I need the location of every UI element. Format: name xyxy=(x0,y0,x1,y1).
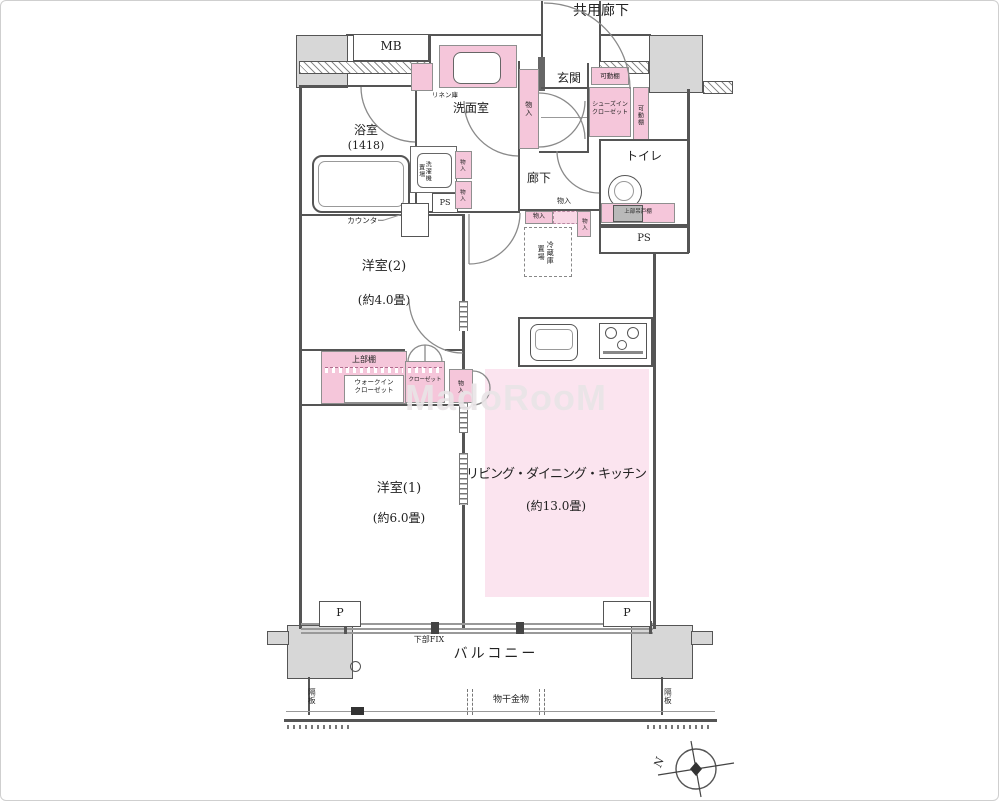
movable-shelf-label: 可動棚 xyxy=(591,72,629,80)
washer-label: 洗濯機 置場 xyxy=(417,151,430,191)
toilet-door-arc xyxy=(557,151,599,193)
lower-fix-label: 下部FIX xyxy=(399,635,459,645)
closet-butterfly-arc xyxy=(425,345,442,362)
partition-label-right: 隔板 xyxy=(663,683,672,709)
bedroom1-label: 洋室(1) xyxy=(341,481,457,497)
bath-label: 浴室 xyxy=(321,123,411,138)
window-frame-mark xyxy=(516,622,524,634)
boundary-dots xyxy=(287,725,353,729)
wall-left-outer xyxy=(299,85,302,629)
toilet-upper-cupboard-label: 上部吊戸棚 xyxy=(599,209,677,216)
balcony-label: バルコニー xyxy=(441,646,551,664)
pillar-indent-label: P xyxy=(603,606,651,620)
watermark: MadoRooM xyxy=(405,377,607,419)
kitchen-sink xyxy=(530,324,578,361)
hall-storage-vertical-label: 物入 xyxy=(580,213,587,235)
stove-burner xyxy=(627,327,639,339)
genkan-closet-arc xyxy=(539,93,585,139)
hatched-wall xyxy=(703,81,733,94)
pillar-top-right xyxy=(649,35,703,93)
genkan-label: 玄関 xyxy=(549,71,589,86)
compass-north-label: N xyxy=(651,755,667,770)
window-frame-mark xyxy=(431,622,439,634)
balcony-drain-circle xyxy=(350,661,361,672)
wall xyxy=(415,211,520,213)
hall-door-arc xyxy=(469,213,520,264)
window-line xyxy=(301,628,653,630)
genkan-step-line xyxy=(541,117,587,118)
toilet-bowl-inner xyxy=(614,181,634,201)
compass: N xyxy=(651,739,741,801)
wall xyxy=(429,34,431,63)
laundry-hook-label: 物干金物 xyxy=(481,695,541,706)
hall-closet-label: 物入 xyxy=(547,197,581,206)
storage-monoire-label: 物入 xyxy=(458,153,465,177)
pillar-bottom-left-arm xyxy=(267,631,289,645)
window-line xyxy=(301,632,653,634)
laundry-hook-mark xyxy=(467,689,473,715)
bedroom1-size-label: (約6.0畳) xyxy=(341,511,457,526)
ldk-size-label: (約13.0畳) xyxy=(483,499,629,514)
wall xyxy=(299,85,416,87)
ldk-label: リビング・ダイニング・キッチン xyxy=(463,467,649,483)
kitchen-sink-inner xyxy=(535,329,573,350)
wall xyxy=(539,151,589,153)
pillar-bottom-right-arm xyxy=(691,631,713,645)
stove-grill xyxy=(603,351,643,354)
wall xyxy=(599,34,651,36)
pillar-indent-label: P xyxy=(319,606,361,620)
bath-size-label: (1418) xyxy=(321,139,411,153)
balcony-outer-line xyxy=(284,719,717,722)
stove-burner xyxy=(605,327,617,339)
bathtub-inner xyxy=(318,161,404,207)
wic-label: ウォークイン クローゼット xyxy=(342,378,406,394)
boundary-dots xyxy=(647,725,713,729)
hanger-pipe-dashes xyxy=(408,367,442,373)
linen-label: リネン庫 xyxy=(425,91,465,99)
upper-shelf-label: 上部棚 xyxy=(321,355,407,365)
entrance-door xyxy=(538,57,545,91)
movable-shelf-side-label: 可動棚 xyxy=(636,93,644,137)
partition-label-left: 隔板 xyxy=(307,683,316,709)
balcony-drain-mark xyxy=(351,707,364,715)
wall xyxy=(445,349,465,351)
vanity-sink xyxy=(453,52,501,84)
stove-burner xyxy=(617,340,627,350)
storage-monoire-label: 物入 xyxy=(458,183,465,207)
closet-butterfly-arc xyxy=(408,345,425,362)
genkan-closet-arc xyxy=(539,101,585,147)
counter-box xyxy=(401,203,429,237)
shoes-in-closet-label: シューズイン クローゼット xyxy=(589,101,631,116)
hall-storage-dashed xyxy=(553,211,579,224)
hall-storage-label: 物入 xyxy=(525,213,553,221)
floor-plan: MB P P 浴室 (1418) 洗面室 リネン庫 洗濯機 置場 PS カウンタ… xyxy=(0,0,999,801)
entrance-monoire-label: 物入 xyxy=(524,81,533,137)
hanger-pipe-dashes xyxy=(325,367,403,373)
toilet-label: トイレ xyxy=(603,149,685,164)
bedroom2-size-label: (約4.0畳) xyxy=(331,293,437,308)
pipe-space-label: PS xyxy=(599,233,689,246)
wall-right-outer-lower xyxy=(653,251,656,629)
opening-marker xyxy=(459,301,468,331)
common-corridor-label: 共用廊下 xyxy=(561,3,641,21)
meter-box-label: MB xyxy=(353,39,429,54)
hallway-label: 廊下 xyxy=(515,171,563,186)
kitchen-stove xyxy=(599,323,647,359)
washroom-label: 洗面室 xyxy=(431,101,511,116)
fridge-space-label: 冷蔵庫 置場 xyxy=(536,235,554,271)
linen-cabinet xyxy=(411,63,433,91)
bathtub xyxy=(312,155,410,213)
bedroom2-label: 洋室(2) xyxy=(331,259,437,275)
